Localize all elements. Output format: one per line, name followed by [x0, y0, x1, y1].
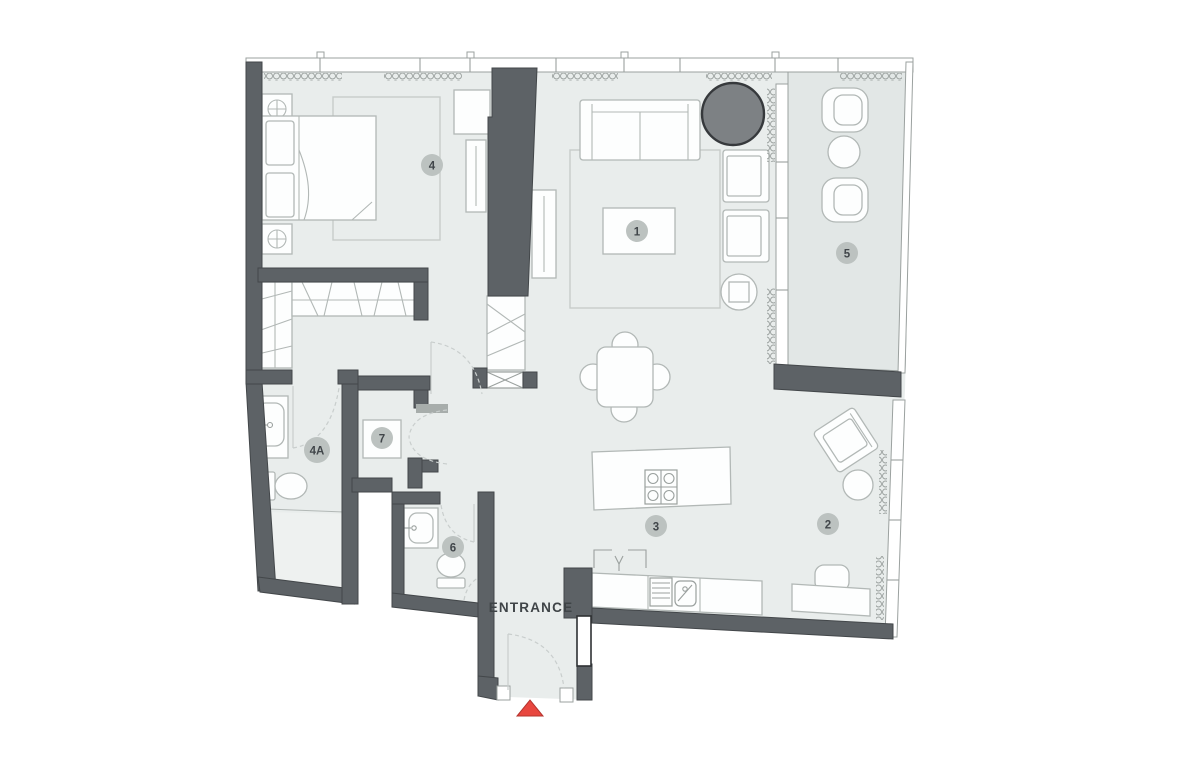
floor-plan-svg: 1 2 3 4 4A 5 6 7 ENTRANCE [0, 0, 1200, 762]
dresser [454, 90, 490, 134]
room-badge-5: 5 [836, 242, 858, 264]
pillow [266, 121, 294, 165]
round-table-dark [702, 83, 764, 145]
svg-text:2: 2 [825, 520, 831, 532]
door-jamb [416, 404, 448, 413]
svg-text:1: 1 [634, 227, 641, 239]
room-badge-1: 1 [626, 220, 648, 242]
dining-table [597, 347, 653, 407]
entrance-label: ENTRANCE [489, 600, 574, 615]
svg-text:3: 3 [653, 522, 659, 534]
room-badge-4: 4 [421, 154, 443, 176]
floor-plan-page: 1 2 3 4 4A 5 6 7 ENTRANCE [0, 0, 1200, 762]
pillow [266, 173, 294, 217]
svg-text:4: 4 [429, 161, 436, 173]
hob-icon [645, 470, 677, 504]
room-badge-2: 2 [817, 513, 839, 535]
room-badge-3: 3 [645, 515, 667, 537]
toilet-icon [437, 553, 465, 588]
room-badge-7: 7 [371, 427, 393, 449]
svg-text:7: 7 [379, 434, 385, 446]
svg-text:4A: 4A [310, 446, 325, 458]
round-side-table [843, 470, 873, 500]
desk [792, 584, 870, 616]
svg-text:5: 5 [844, 249, 851, 261]
entry-door-panel [577, 616, 591, 666]
entrance-marker-triangle [517, 700, 543, 716]
balcony-table [828, 136, 860, 168]
room-badge-4a: 4A [304, 437, 330, 463]
svg-text:6: 6 [450, 543, 456, 555]
toilet-icon [264, 472, 307, 500]
room-badge-6: 6 [442, 536, 464, 558]
hall-cabinet [487, 296, 525, 388]
window-band-top [246, 58, 913, 72]
door-sill [560, 688, 573, 702]
glass-wall-balcony [776, 84, 788, 366]
